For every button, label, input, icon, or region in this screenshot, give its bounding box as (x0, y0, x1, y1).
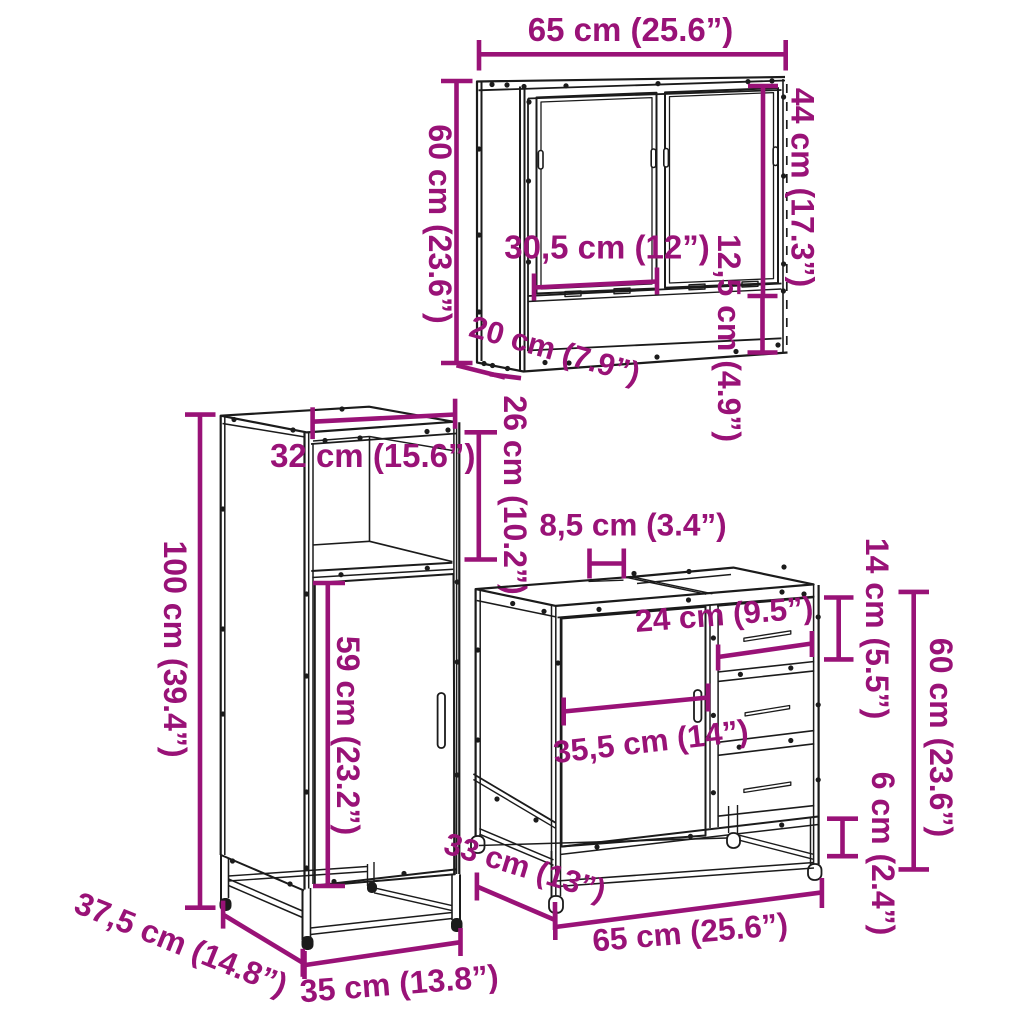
svg-text:60 cm (23.6”): 60 cm (23.6”) (422, 124, 458, 323)
svg-text:60 cm (23.6”): 60 cm (23.6”) (923, 638, 959, 837)
svg-text:8,5 cm (3.4”): 8,5 cm (3.4”) (539, 507, 726, 543)
svg-text:32 cm (15.6”): 32 cm (15.6”) (270, 437, 475, 474)
svg-text:14 cm (5.5”): 14 cm (5.5”) (859, 538, 895, 719)
svg-text:100 cm (39.4”): 100 cm (39.4”) (157, 540, 193, 757)
svg-text:12,5 cm (4.9”): 12,5 cm (4.9”) (711, 234, 747, 442)
svg-text:26 cm (10.2”): 26 cm (10.2”) (497, 395, 533, 594)
svg-text:59 cm (23.2”): 59 cm (23.2”) (330, 636, 366, 835)
svg-text:65 cm (25.6”): 65 cm (25.6”) (528, 11, 733, 48)
svg-text:6 cm (2.4”): 6 cm (2.4”) (865, 772, 901, 936)
svg-text:44 cm (17.3”): 44 cm (17.3”) (785, 88, 821, 287)
svg-text:30,5 cm (12”): 30,5 cm (12”) (504, 229, 709, 266)
